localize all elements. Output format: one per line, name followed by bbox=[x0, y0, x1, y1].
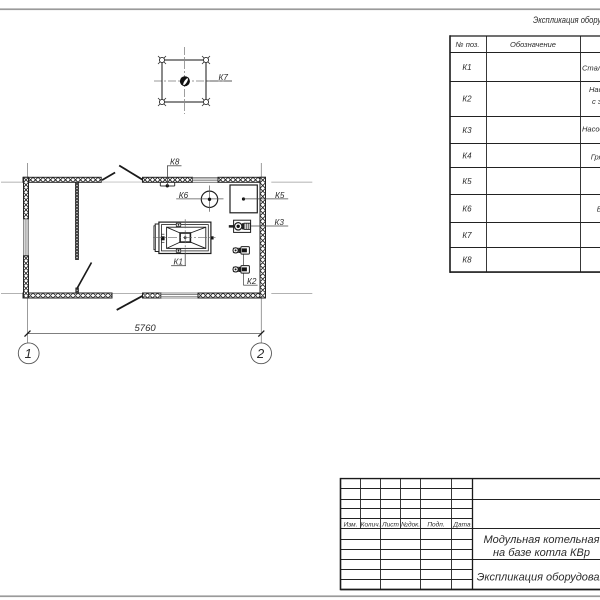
svg-text:на базе котла КВр: на базе котла КВр bbox=[493, 547, 590, 559]
svg-text:Грязевик: Грязевик bbox=[591, 152, 600, 161]
svg-text:К6: К6 bbox=[462, 204, 472, 213]
svg-text:2: 2 bbox=[256, 346, 265, 361]
svg-text:К7: К7 bbox=[462, 231, 472, 240]
svg-text:1: 1 bbox=[25, 346, 32, 361]
svg-text:К8: К8 bbox=[462, 256, 472, 265]
svg-text:К4: К4 bbox=[462, 152, 472, 161]
svg-text:Лист: Лист bbox=[381, 521, 399, 528]
svg-text:К1: К1 bbox=[174, 258, 183, 267]
svg-text:Дата: Дата bbox=[452, 521, 471, 528]
svg-text:Изм.: Изм. bbox=[344, 521, 358, 528]
svg-text:К5: К5 bbox=[462, 177, 472, 186]
svg-text:К3: К3 bbox=[462, 126, 472, 135]
svg-text:К2: К2 bbox=[462, 95, 472, 104]
svg-text:К7: К7 bbox=[219, 73, 229, 82]
svg-text:Стальной котел КВр: Стальной котел КВр bbox=[582, 63, 600, 72]
svg-text:К5: К5 bbox=[275, 191, 285, 200]
svg-text:№док.: №док. bbox=[401, 520, 420, 528]
svg-text:К6: К6 bbox=[179, 191, 189, 200]
svg-text:Экспликация оборудования: Экспликация оборудования bbox=[533, 15, 600, 26]
svg-text:с эл.двигателем: с эл.двигателем bbox=[592, 97, 600, 106]
svg-text:К2: К2 bbox=[247, 277, 257, 286]
svg-text:Насос сетевой: Насос сетевой bbox=[589, 85, 600, 94]
svg-text:Обозначение: Обозначение bbox=[510, 40, 556, 49]
svg-text:К8: К8 bbox=[170, 158, 180, 167]
svg-text:5760: 5760 bbox=[135, 323, 157, 334]
svg-text:К1: К1 bbox=[462, 63, 471, 72]
svg-text:Насос подпиточный: Насос подпиточный bbox=[582, 124, 600, 133]
svg-text:К3: К3 bbox=[275, 218, 285, 227]
svg-text:Подп.: Подп. bbox=[427, 520, 444, 528]
svg-text:№ поз.: № поз. bbox=[456, 40, 480, 49]
svg-text:Экспликация оборудования: Экспликация оборудования bbox=[477, 572, 600, 584]
svg-text:Модульная котельная: Модульная котельная bbox=[484, 534, 600, 546]
svg-text:Колич.: Колич. bbox=[361, 521, 381, 528]
